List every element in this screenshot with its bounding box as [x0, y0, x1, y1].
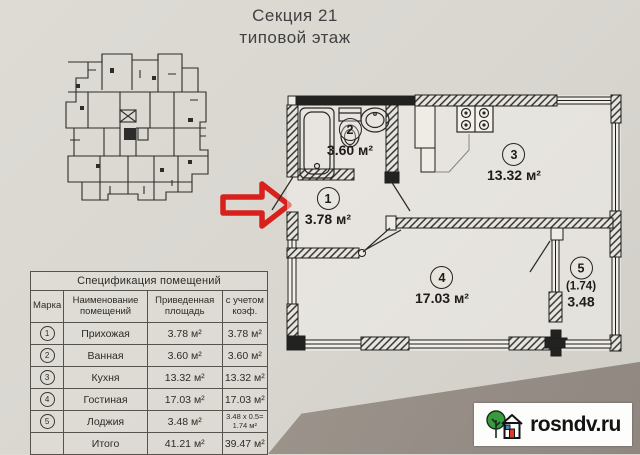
cell-area: 41.21 м²	[147, 433, 222, 455]
table-row: 2 Ванная 3.60 м² 3.60 м²	[31, 345, 268, 367]
mark-circle: 5	[40, 414, 55, 429]
room-label-living-room: 4 17.03 м²	[415, 266, 469, 306]
room-label-hallway: 1 3.78 м²	[305, 187, 351, 227]
room-label-bathroom: 2 3.60 м²	[327, 118, 373, 158]
room-area: 3.48	[567, 294, 594, 310]
room-label-kitchen: 3 13.32 м²	[487, 143, 541, 183]
cell-area: 3.60 м²	[147, 345, 222, 367]
cell-area: 13.32 м²	[147, 367, 222, 389]
room-area-note: (1.74)	[566, 281, 596, 293]
cell-area: 3.48 м²	[147, 411, 222, 433]
room-mark: 5	[569, 257, 592, 280]
cell-mark: 2	[31, 345, 64, 367]
mark-circle: 1	[40, 326, 55, 341]
table-total-row: Итого 41.21 м² 39.47 м²	[31, 433, 268, 455]
room-area: 17.03 м²	[415, 290, 469, 306]
cell-coef: 3.48 x 0.5= 1.74 м²	[222, 411, 267, 433]
cell-mark	[31, 433, 64, 455]
stove-icon	[457, 106, 493, 132]
column-header-coef: с учетом коэф.	[222, 291, 267, 323]
cell-name: Гостиная	[64, 389, 148, 411]
cell-coef: 39.47 м²	[222, 433, 267, 455]
cell-mark: 5	[31, 411, 64, 433]
room-area: 3.60 м²	[327, 142, 373, 158]
logo-house-tree-icon	[485, 408, 525, 442]
cell-mark: 1	[31, 323, 64, 345]
column-header-name: Наименование помещений	[64, 291, 148, 323]
room-area: 13.32 м²	[487, 167, 541, 183]
specification-table: Спецификация помещений Марка Наименовани…	[30, 271, 268, 455]
cell-coef: 3.78 м²	[222, 323, 267, 345]
cell-coef: 3.60 м²	[222, 345, 267, 367]
room-mark: 2	[339, 118, 362, 141]
cell-name: Прихожая	[64, 323, 148, 345]
cell-name: Кухня	[64, 367, 148, 389]
cell-area: 3.78 м²	[147, 323, 222, 345]
coef-result: 1.74 м²	[225, 422, 265, 431]
room-mark: 1	[317, 187, 340, 210]
cell-coef: 13.32 м²	[222, 367, 267, 389]
room-mark: 3	[502, 143, 525, 166]
building-walls	[66, 54, 208, 200]
section-title: Секция 21	[170, 6, 420, 26]
cell-area: 17.03 м²	[147, 389, 222, 411]
mark-circle: 4	[40, 392, 55, 407]
cell-mark: 3	[31, 367, 64, 389]
mark-circle: 3	[40, 370, 55, 385]
cell-name: Ванная	[64, 345, 148, 367]
table-row: 1 Прихожая 3.78 м² 3.78 м²	[31, 323, 268, 345]
column-header-mark: Марка	[31, 291, 64, 323]
cell-name: Лоджия	[64, 411, 148, 433]
cell-name: Итого	[64, 433, 148, 455]
room-label-loggia: 5 (1.74) 3.48	[566, 257, 596, 310]
table-title-row: Спецификация помещений	[31, 272, 268, 291]
table-title: Спецификация помещений	[31, 272, 268, 291]
mark-circle: 2	[40, 348, 55, 363]
room-area: 3.78 м²	[305, 211, 351, 227]
room-mark: 4	[430, 266, 453, 289]
cell-mark: 4	[31, 389, 64, 411]
watermark-site-text: rosndv.ru	[530, 413, 621, 437]
table-row: 5 Лоджия 3.48 м² 3.48 x 0.5= 1.74 м²	[31, 411, 268, 433]
watermark-badge: rosndv.ru	[474, 403, 632, 446]
table-header-row: Марка Наименование помещений Приведенная…	[31, 291, 268, 323]
table-row: 3 Кухня 13.32 м² 13.32 м²	[31, 367, 268, 389]
cell-coef: 17.03 м²	[222, 389, 267, 411]
building-overview-plan	[40, 40, 220, 220]
column-header-area: Приведенная площадь	[147, 291, 222, 323]
table-row: 4 Гостиная 17.03 м² 17.03 м²	[31, 389, 268, 411]
